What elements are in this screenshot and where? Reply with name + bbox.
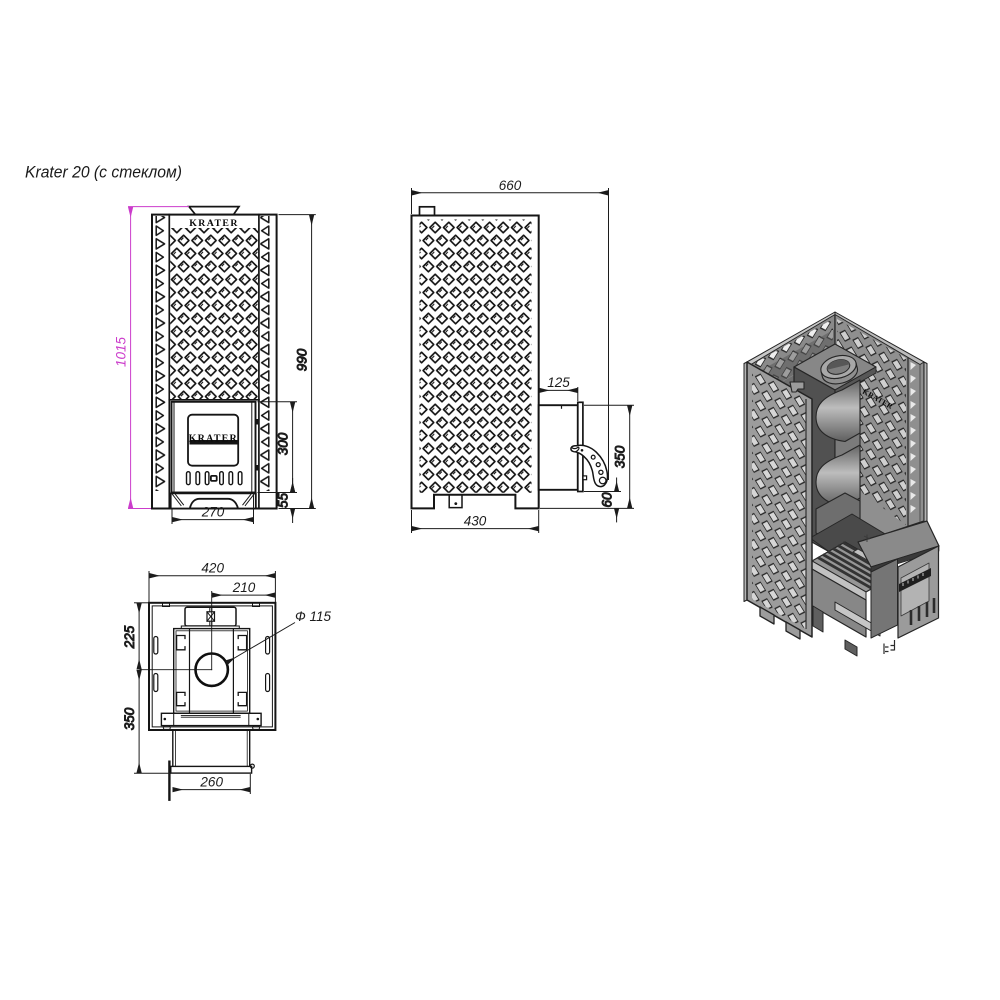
svg-text:350: 350 (613, 445, 628, 468)
svg-text:KRATER: KRATER (189, 218, 239, 229)
svg-text:KRATER: KRATER (189, 434, 238, 445)
svg-text:55: 55 (276, 493, 291, 509)
svg-text:270: 270 (201, 505, 225, 520)
svg-text:660: 660 (499, 178, 522, 193)
svg-text:420: 420 (201, 561, 224, 576)
svg-text:260: 260 (199, 774, 223, 789)
svg-text:210: 210 (232, 580, 256, 595)
svg-text:225: 225 (122, 625, 137, 649)
svg-text:125: 125 (547, 375, 570, 390)
svg-text:1015: 1015 (114, 336, 129, 367)
svg-text:Ф 115: Ф 115 (295, 609, 331, 624)
svg-text:60: 60 (599, 492, 614, 508)
svg-text:990: 990 (295, 348, 310, 371)
svg-text:300: 300 (276, 432, 291, 455)
svg-text:350: 350 (122, 707, 137, 730)
svg-text:430: 430 (464, 513, 487, 528)
svg-text:Krater 20 (с стеклом): Krater 20 (с стеклом) (25, 163, 182, 182)
